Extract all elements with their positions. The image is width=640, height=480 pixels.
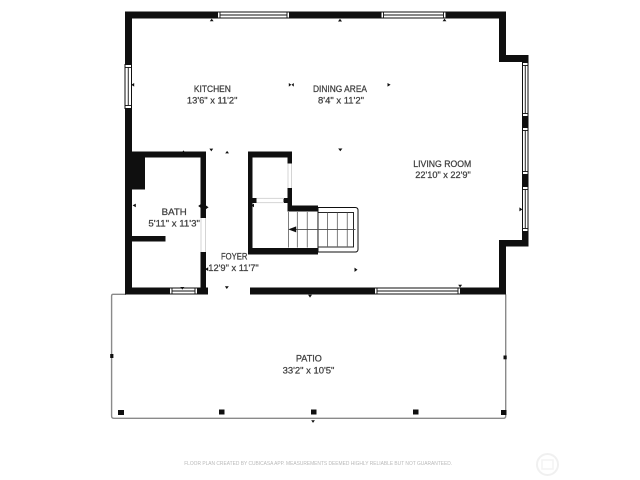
svg-text:KITCHEN: KITCHEN (194, 84, 231, 94)
svg-text:5'11" x 11'3": 5'11" x 11'3" (148, 219, 200, 229)
svg-text:LIVING ROOM: LIVING ROOM (413, 159, 471, 169)
svg-text:BATH: BATH (162, 207, 187, 217)
svg-text:12'9" x 11'7": 12'9" x 11'7" (208, 263, 259, 273)
svg-text:22'10" x 22'9": 22'10" x 22'9" (415, 170, 471, 180)
svg-text:8'4" x 11'2": 8'4" x 11'2" (318, 95, 364, 105)
svg-text:FOYER: FOYER (221, 252, 248, 262)
svg-text:DINING AREA: DINING AREA (313, 84, 368, 94)
svg-text:FLOOR PLAN CREATED BY CUBICASA: FLOOR PLAN CREATED BY CUBICASA APP. MEAS… (184, 461, 452, 467)
svg-text:PATIO: PATIO (296, 354, 322, 364)
svg-text:13'6" x 11'2": 13'6" x 11'2" (187, 95, 238, 105)
svg-text:33'2" x 10'5": 33'2" x 10'5" (283, 365, 335, 375)
